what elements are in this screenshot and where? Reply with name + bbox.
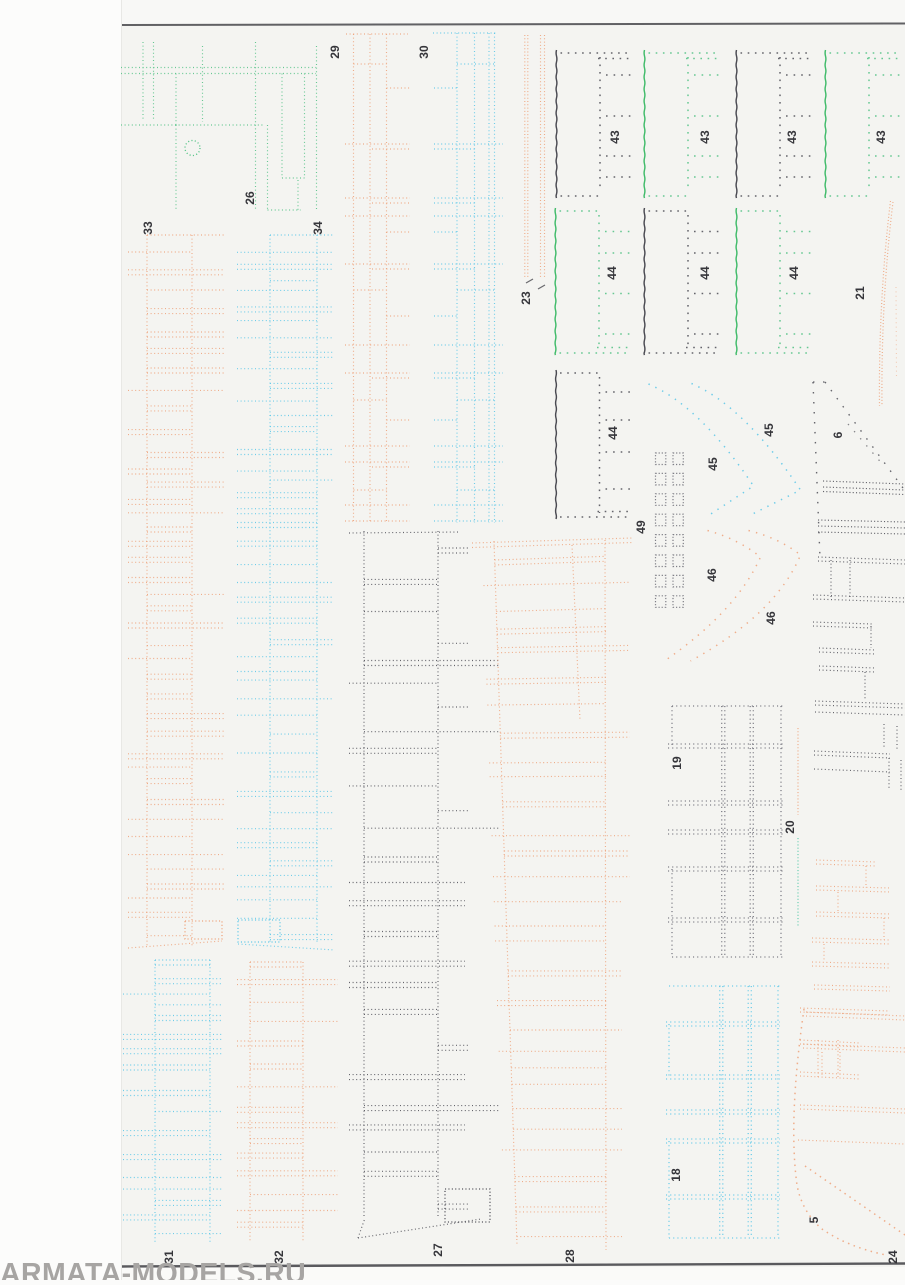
svg-text:6: 6 <box>831 431 845 438</box>
svg-text:34: 34 <box>311 221 325 235</box>
svg-text:23: 23 <box>519 291 533 305</box>
svg-text:49: 49 <box>634 520 648 534</box>
svg-text:46: 46 <box>705 568 719 582</box>
svg-text:43: 43 <box>874 130 888 144</box>
svg-text:24: 24 <box>886 1250 900 1264</box>
svg-text:44: 44 <box>605 266 619 280</box>
svg-text:5: 5 <box>807 1216 821 1223</box>
svg-text:45: 45 <box>706 457 720 471</box>
svg-text:ARMATA-MODELS.RU: ARMATA-MODELS.RU <box>0 1258 306 1280</box>
svg-text:18: 18 <box>669 1168 683 1182</box>
svg-text:30: 30 <box>417 45 431 59</box>
svg-text:21: 21 <box>853 286 867 300</box>
svg-text:43: 43 <box>785 130 799 144</box>
svg-text:44: 44 <box>606 426 620 440</box>
svg-text:45: 45 <box>762 423 776 437</box>
svg-text:20: 20 <box>783 820 797 834</box>
svg-text:33: 33 <box>141 221 155 235</box>
svg-text:27: 27 <box>431 1243 445 1257</box>
svg-text:28: 28 <box>563 1249 577 1263</box>
svg-text:44: 44 <box>787 266 801 280</box>
svg-text:29: 29 <box>328 45 342 59</box>
svg-text:19: 19 <box>670 756 684 770</box>
svg-text:43: 43 <box>698 130 712 144</box>
svg-text:46: 46 <box>764 611 778 625</box>
svg-text:43: 43 <box>608 130 622 144</box>
svg-text:44: 44 <box>698 266 712 280</box>
svg-text:26: 26 <box>243 191 257 205</box>
